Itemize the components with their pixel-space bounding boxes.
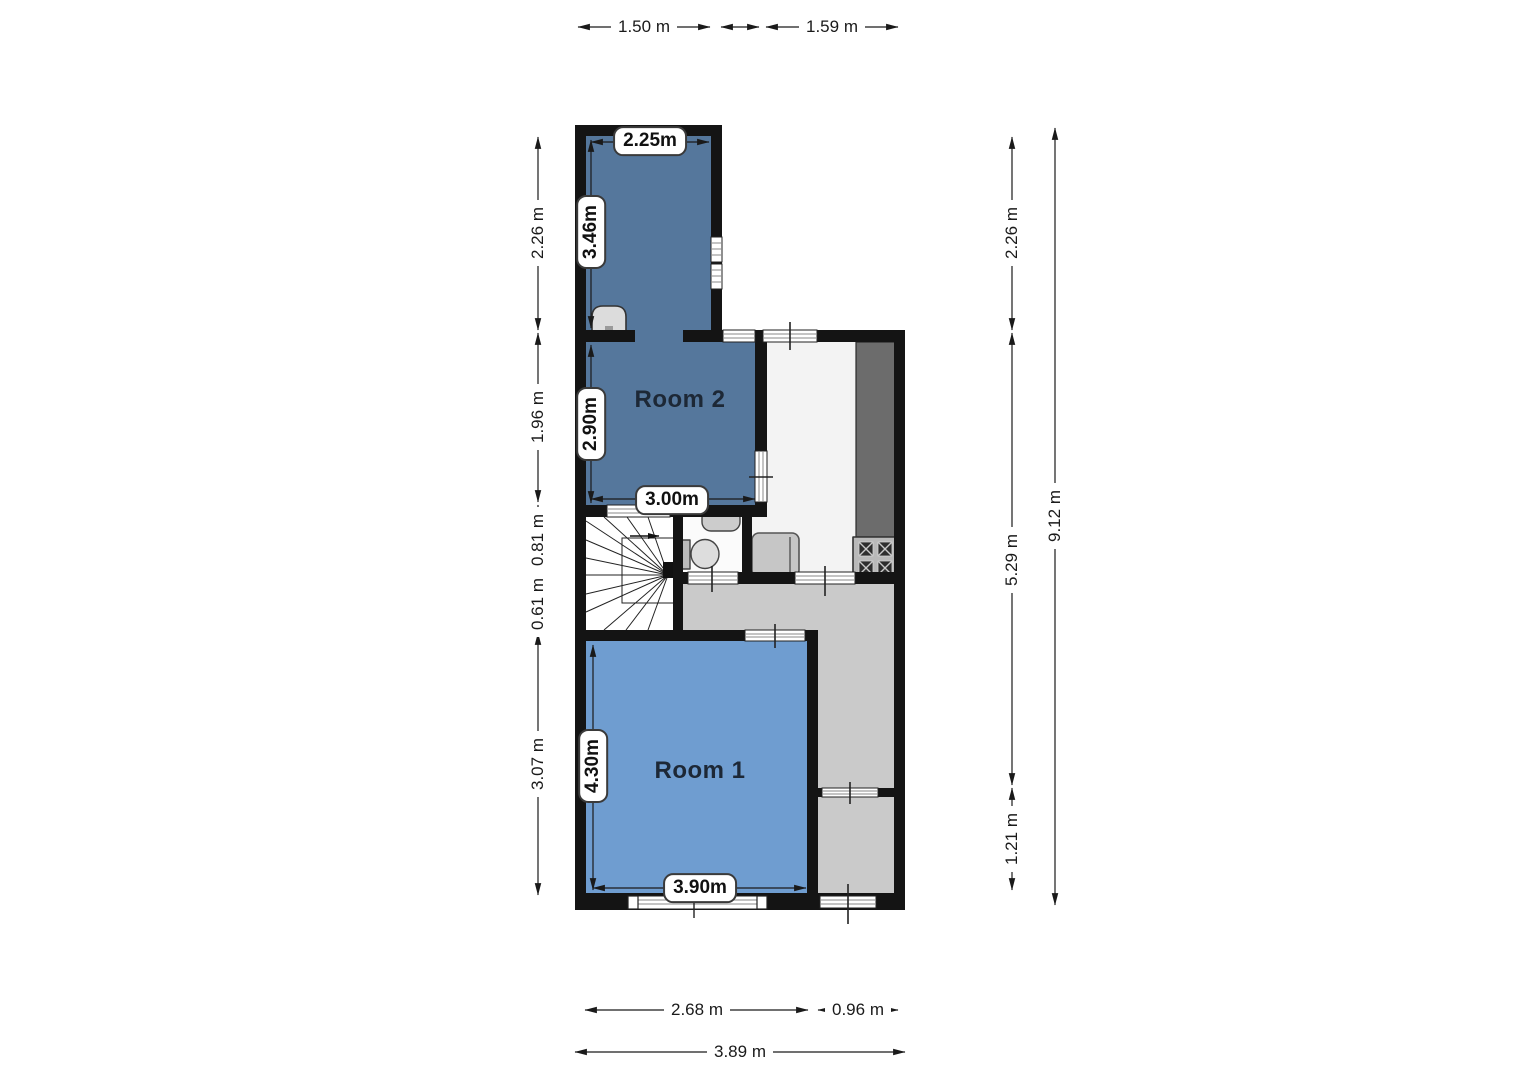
dim-label-bottom-1: 2.68 m bbox=[664, 1000, 730, 1020]
dim-label-right-total: 9.12 m bbox=[1045, 483, 1065, 549]
dim-label-right-3: 1.21 m bbox=[1002, 806, 1022, 872]
dim-pill-room2-depth: 2.90m bbox=[576, 387, 606, 461]
dim-label-top-2: 1.59 m bbox=[799, 17, 865, 37]
wall-stair-wc-left bbox=[673, 505, 683, 641]
dim-label-left-4: 0.61 m bbox=[528, 571, 548, 637]
dim-label-left-2: 1.96 m bbox=[528, 384, 548, 450]
dim-label-left-3: 0.81 m bbox=[528, 507, 548, 573]
dim-label-bottom-2: 0.96 m bbox=[825, 1000, 891, 1020]
dim-pill-top-room-depth: 3.46m bbox=[576, 195, 606, 269]
wall-outer-right bbox=[894, 330, 905, 910]
dim-pill-room1-depth: 4.30m bbox=[578, 729, 608, 803]
dim-pill-room2-width: 3.00m bbox=[635, 485, 709, 515]
floor-plan-drawing bbox=[0, 0, 1527, 1080]
dim-pill-room1-width: 3.90m bbox=[663, 873, 737, 903]
hallway-corridor bbox=[808, 640, 898, 898]
dim-label-left-1: 2.26 m bbox=[528, 200, 548, 266]
dim-label-right-2: 5.29 m bbox=[1002, 527, 1022, 593]
room1-label: Room 1 bbox=[654, 757, 745, 785]
window-kitchen-left bbox=[723, 330, 755, 342]
room2-label: Room 2 bbox=[634, 386, 725, 414]
dim-pill-top-room-width: 2.25m bbox=[613, 126, 687, 156]
kitchen-counter-icon bbox=[856, 342, 896, 537]
dim-label-top-1: 1.50 m bbox=[611, 17, 677, 37]
dim-label-right-1: 2.26 m bbox=[1002, 200, 1022, 266]
floor-plan-page: 1.50 m 1.59 m 2.26 m 1.96 m 0.81 m 0.61 … bbox=[0, 0, 1527, 1080]
wall-top-room-right bbox=[711, 125, 722, 342]
wall-top-room-bottom-left bbox=[575, 330, 635, 342]
toilet-bowl-icon bbox=[691, 540, 719, 569]
dim-label-left-5: 3.07 m bbox=[528, 731, 548, 797]
dim-label-bottom-total: 3.89 m bbox=[707, 1042, 773, 1062]
armchair-icon bbox=[752, 533, 799, 577]
wall-room1-right bbox=[807, 630, 818, 903]
